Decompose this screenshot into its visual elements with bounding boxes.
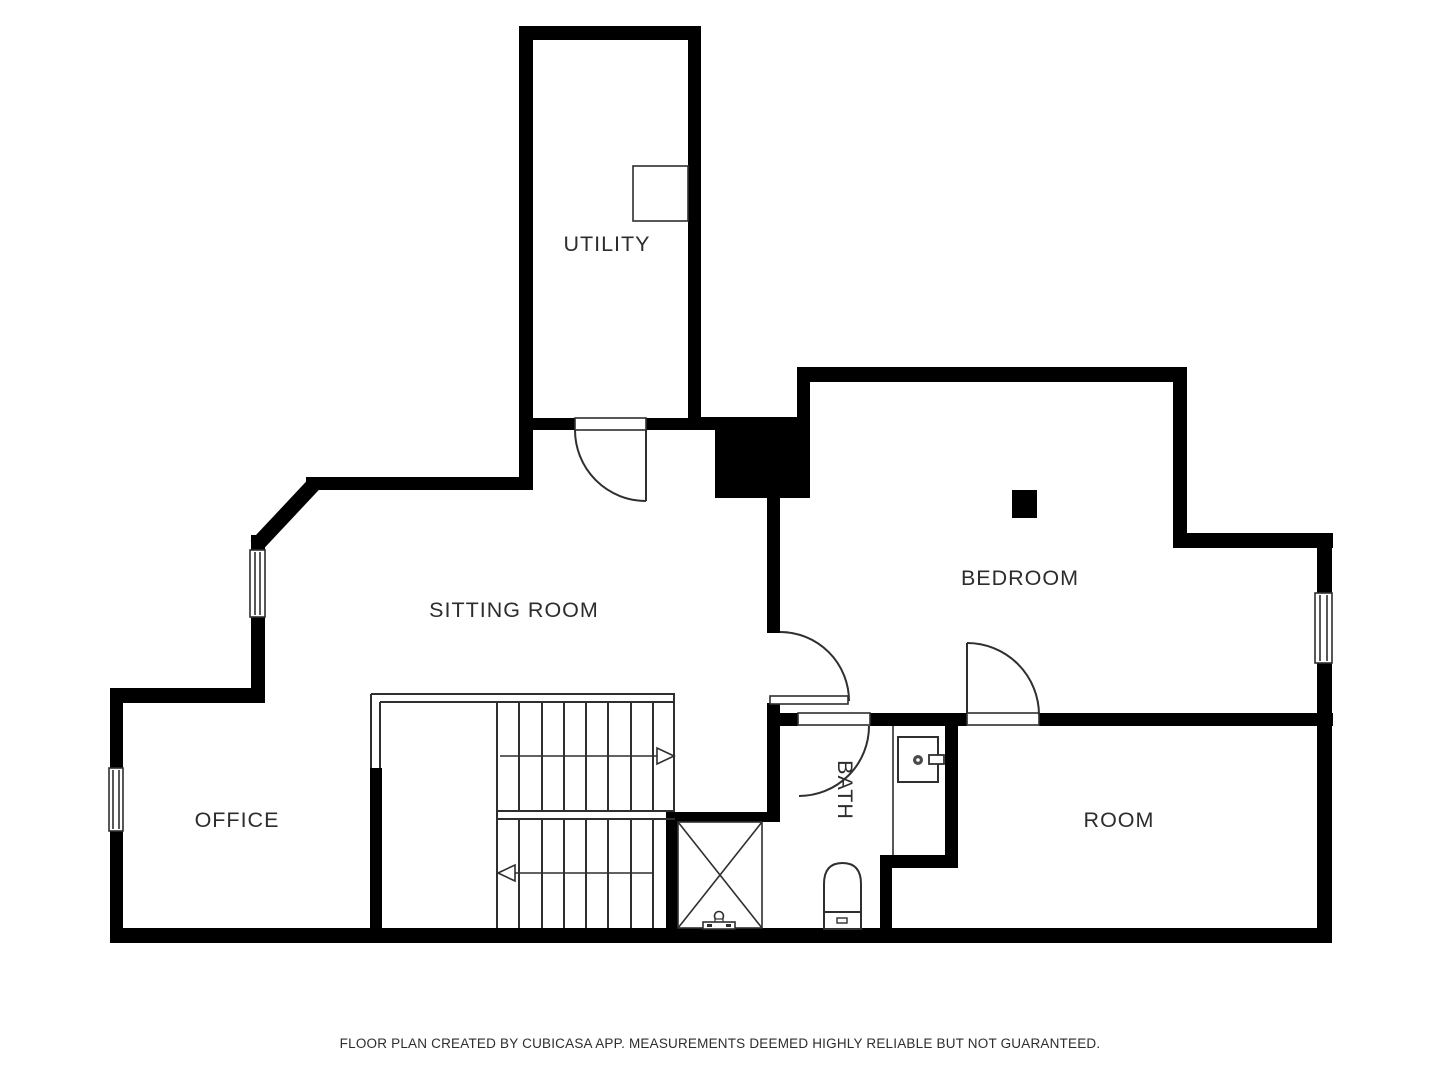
windows — [109, 550, 1332, 831]
room-label-room: ROOM — [1084, 808, 1155, 832]
floor-plan-drawing: UTILITY SITTING ROOM BEDROOM OFFICE BATH… — [0, 0, 1440, 1080]
footer-attribution: FLOOR PLAN CREATED BY CUBICASA APP. MEAS… — [340, 1036, 1101, 1051]
window-frame — [1315, 593, 1332, 663]
wall-bedroom-right-ext — [1173, 533, 1333, 548]
wall-sitting-top — [306, 477, 532, 490]
window-frame — [109, 768, 123, 831]
room-label-bedroom: BEDROOM — [961, 566, 1079, 590]
door-utility — [575, 418, 646, 501]
wall-utility-top — [519, 26, 701, 40]
wall-shaft-top — [666, 812, 777, 822]
toilet-icon — [824, 863, 861, 929]
door-swing-arc — [780, 632, 849, 701]
room-label-office: OFFICE — [195, 808, 280, 832]
stair-arrow-down-icon — [498, 865, 652, 881]
wall-utility-bottom-left — [533, 418, 575, 430]
door-bedroom — [967, 643, 1039, 725]
wall-outer-right-upper — [1317, 548, 1332, 593]
wall-office-left-lower — [110, 831, 123, 943]
door-sitting-room — [770, 632, 849, 704]
sink-icon — [898, 737, 944, 782]
door-opening — [575, 418, 646, 430]
door-swing-arc — [575, 430, 646, 501]
wall-left-above-window — [251, 535, 265, 550]
wall-bath-jog — [880, 855, 958, 868]
door-swing-arc — [967, 643, 1039, 715]
room-label-sitting-room: SITTING ROOM — [429, 598, 599, 622]
wall-link-utility-block — [688, 417, 715, 430]
door-opening — [967, 713, 1039, 725]
staircase — [371, 694, 675, 928]
chimney-icon — [1012, 490, 1037, 518]
wall-utility-left — [519, 26, 533, 490]
wall-bedroom-top — [797, 367, 1187, 382]
window-sitting-left — [250, 550, 265, 617]
appliance-icon — [633, 166, 688, 221]
wall-bedroom-right-upper — [1173, 367, 1187, 548]
room-label-bath: BATH — [833, 760, 857, 820]
wall-bottom — [110, 928, 1332, 943]
wall-divider-upper — [767, 498, 780, 633]
window-office-left — [109, 768, 123, 831]
door-opening — [798, 713, 870, 725]
window-bedroom-right — [1315, 593, 1332, 663]
shaft-void — [678, 822, 762, 929]
wall-office-left-upper — [110, 703, 123, 768]
wall-office-stairs — [370, 768, 382, 928]
wall-bath-right — [945, 726, 958, 857]
wall-bath-lower-left — [880, 868, 892, 928]
door-leaf — [770, 696, 848, 704]
room-label-utility: UTILITY — [563, 232, 650, 256]
tap-icon — [703, 912, 735, 930]
wall-outer-right-lower — [1317, 663, 1332, 943]
wall-mid-b — [870, 713, 967, 726]
wall-office-top — [110, 688, 265, 703]
wall-shaft-left — [666, 812, 678, 928]
wall-mid-a — [767, 713, 798, 726]
floor-plan-page: UTILITY SITTING ROOM BEDROOM OFFICE BATH… — [0, 0, 1440, 1080]
wall-block — [715, 417, 810, 498]
window-frame — [250, 550, 265, 617]
wall-mid-c — [1039, 713, 1333, 726]
walls — [110, 26, 1333, 943]
wall-utility-right — [688, 26, 701, 418]
